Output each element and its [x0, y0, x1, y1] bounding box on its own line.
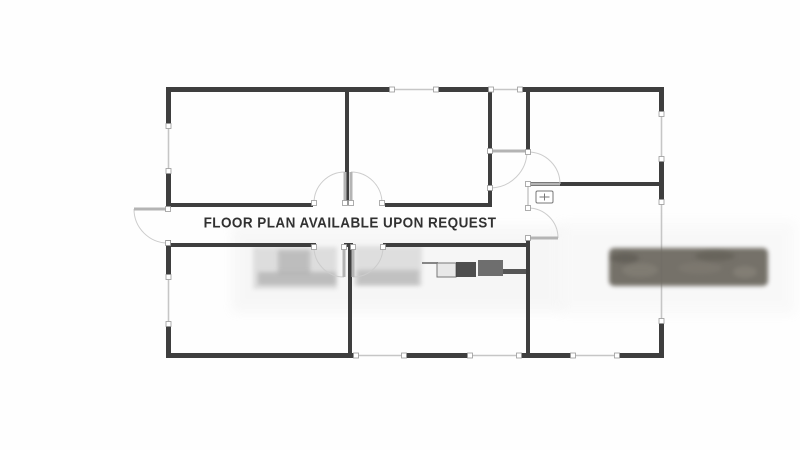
hall-to-top-left-room-door-swing-arc [314, 172, 345, 203]
wall-segment [383, 243, 528, 247]
window-cap [659, 157, 664, 162]
window-cap [526, 150, 531, 155]
window-cap [312, 245, 317, 250]
wall-segment [526, 89, 530, 151]
wall-segment [659, 321, 664, 358]
window-cap [343, 201, 348, 206]
window-cap [488, 149, 493, 154]
window-cap [342, 245, 347, 250]
window-cap [381, 245, 386, 250]
closet-door-swing-arc [490, 151, 527, 188]
wall-segment [436, 87, 491, 92]
dark-furniture-bar-texture [695, 251, 735, 261]
window-cap [434, 87, 439, 92]
kitchen-stove [456, 262, 476, 277]
wall-segment [526, 238, 530, 358]
window-cap [166, 207, 171, 212]
wall-segment [659, 159, 664, 202]
wall-segment [166, 87, 392, 92]
window-cap [526, 182, 531, 187]
kitchen-sink [437, 263, 456, 277]
window-cap [380, 201, 385, 206]
wall-segment [166, 243, 316, 247]
top-right-room-door-swing-arc [528, 152, 560, 184]
window-cap [166, 241, 171, 246]
wall-segment [659, 87, 664, 114]
window-cap [402, 353, 407, 358]
front-entry-door-swing-arc [134, 209, 168, 243]
wall-segment [404, 353, 470, 358]
kitchen-appliance [478, 260, 503, 276]
wall-segment [166, 171, 171, 208]
wall-segment [166, 324, 171, 358]
wall-segment [166, 353, 356, 358]
window-cap [166, 124, 171, 129]
wall-segment [520, 87, 664, 92]
window-cap [517, 353, 522, 358]
window-cap [166, 322, 171, 327]
dark-furniture-bar-texture [678, 262, 722, 274]
wall-segment [166, 203, 313, 207]
window-cap [166, 275, 171, 280]
window-cap [354, 353, 359, 358]
wall-segment [385, 203, 490, 207]
window-cap [659, 200, 664, 205]
window-cap [166, 169, 171, 174]
watermark-text: FLOOR PLAN AVAILABLE UPON REQUEST [170, 214, 530, 230]
wall-segment [166, 87, 171, 126]
faded-bed-pillows [278, 250, 310, 274]
window-cap [571, 353, 576, 358]
dark-furniture-bar-texture [622, 263, 658, 277]
dark-furniture-bar-texture [733, 266, 757, 278]
dark-furniture-bar-texture [611, 253, 639, 263]
faded-kitchen-cabinet-base [357, 270, 419, 285]
window-cap [526, 236, 531, 241]
window-cap [312, 201, 317, 206]
window-cap [349, 201, 354, 206]
window-cap [489, 87, 494, 92]
kitchen-counter-line [422, 262, 438, 264]
window-cap [518, 87, 523, 92]
window-cap [390, 87, 395, 92]
hall-to-top-middle-room-door-swing-arc [351, 172, 382, 203]
window-cap [615, 353, 620, 358]
faded-bed-base [258, 272, 336, 285]
window-cap [659, 112, 664, 117]
floor-plan-image: FLOOR PLAN AVAILABLE UPON REQUEST [0, 0, 800, 450]
window-cap [526, 206, 531, 211]
kitchen-counter-bar [503, 269, 528, 274]
wall-segment [348, 245, 352, 357]
window-cap [488, 186, 493, 191]
window-cap [351, 245, 356, 250]
wall-segment [617, 353, 664, 358]
window-cap [659, 319, 664, 324]
window-cap [468, 353, 473, 358]
